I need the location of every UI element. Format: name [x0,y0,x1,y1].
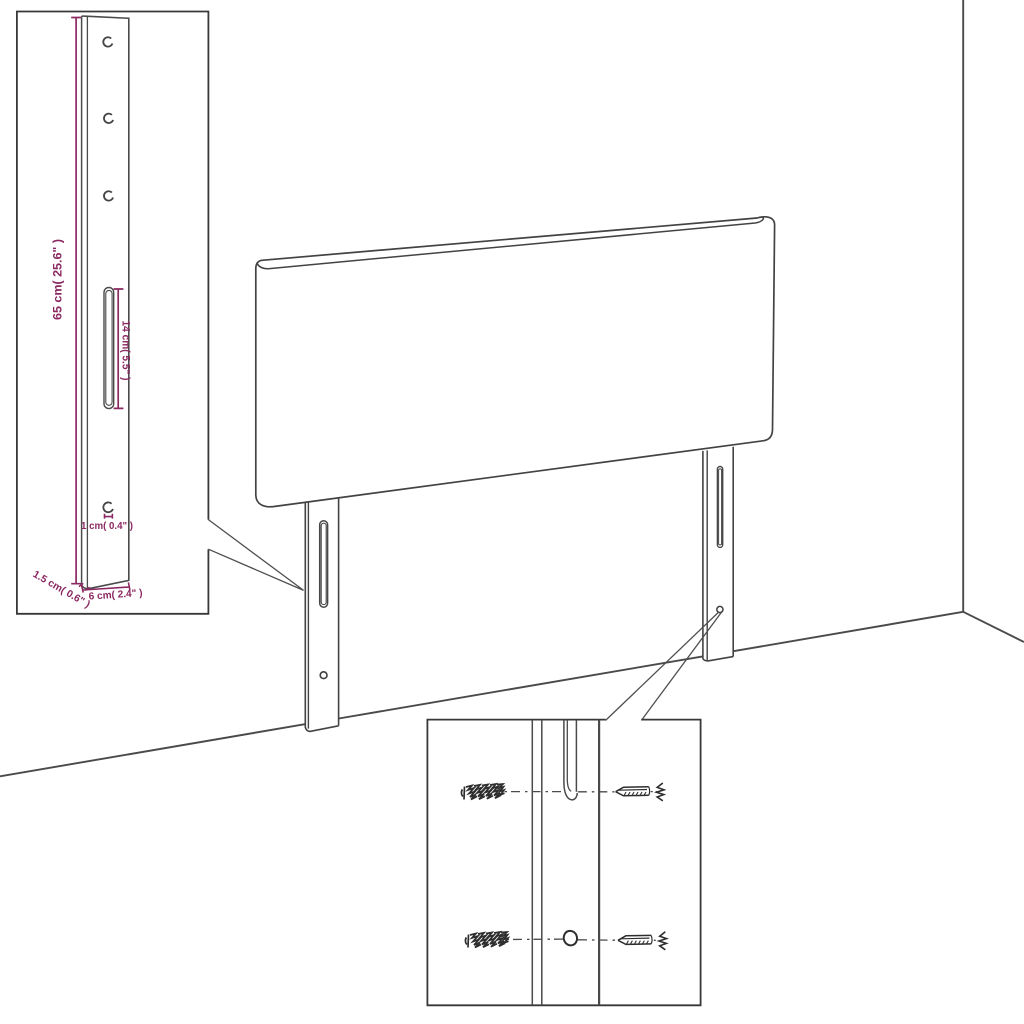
svg-text:65 cm( 25.6" ): 65 cm( 25.6" ) [52,239,65,320]
svg-text:1 cm( 0.4" ): 1 cm( 0.4" ) [81,521,133,532]
svg-text:14 cm( 5.5" ): 14 cm( 5.5" ) [120,321,132,381]
svg-text:6 cm( 2.4" ): 6 cm( 2.4" ) [88,588,143,603]
